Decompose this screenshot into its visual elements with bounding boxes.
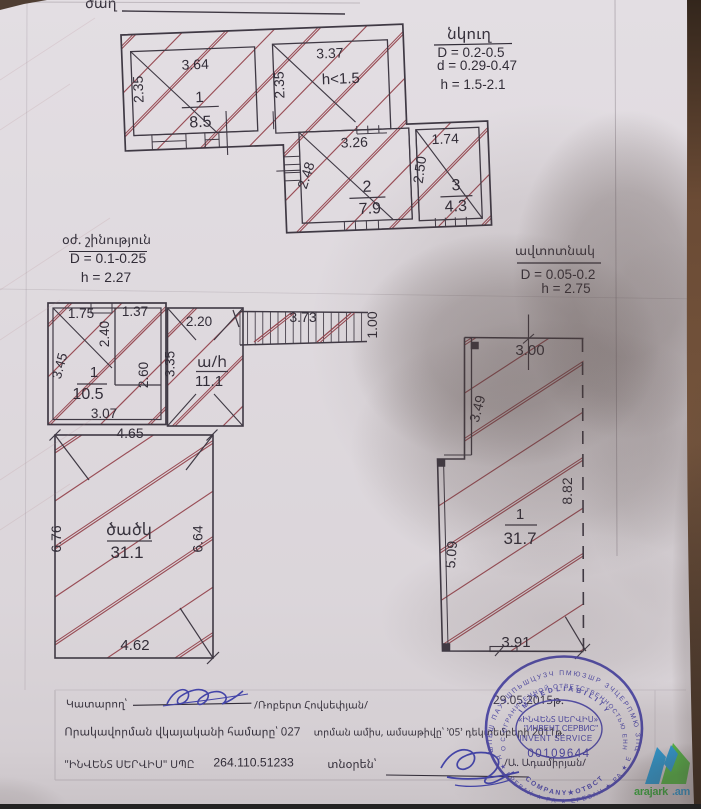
svg-text:1: 1 [195, 89, 204, 106]
svg-text:4.65: 4.65 [116, 425, 143, 441]
svg-text:3.64: 3.64 [181, 56, 209, 73]
svg-text:2.40: 2.40 [97, 321, 112, 347]
svg-text:8.5: 8.5 [189, 114, 212, 132]
svg-text:h = 2.27: h = 2.27 [81, 270, 131, 285]
svg-text:11.1: 11.1 [195, 373, 223, 390]
svg-text:3.35: 3.35 [163, 351, 178, 377]
svg-text:1.75: 1.75 [68, 306, 94, 321]
svg-text:3.26: 3.26 [340, 134, 368, 151]
svg-text:3.37: 3.37 [316, 44, 344, 61]
svg-text:6.76: 6.76 [48, 525, 64, 552]
svg-text:2.35: 2.35 [271, 71, 288, 99]
svg-text:1.37: 1.37 [122, 304, 148, 319]
svg-text:2.20: 2.20 [186, 314, 212, 329]
svg-text:D = 0.1-0.25: D = 0.1-0.25 [70, 251, 147, 266]
svg-text:6.64: 6.64 [190, 525, 206, 552]
svg-text:2.60: 2.60 [136, 362, 151, 388]
svg-text:2.35: 2.35 [130, 75, 147, 103]
svg-text:10.5: 10.5 [72, 386, 103, 403]
svg-text:h = 1.5-2.1: h = 1.5-2.1 [441, 77, 506, 92]
svg-text:3.07: 3.07 [91, 406, 117, 421]
svg-text:264.110.51233: 264.110.51233 [213, 756, 294, 770]
svg-text:31.1: 31.1 [110, 543, 143, 562]
svg-text:1: 1 [90, 364, 98, 381]
svg-text:h<1.5: h<1.5 [322, 70, 361, 88]
svg-text:d = 0.29-0.47: d = 0.29-0.47 [437, 58, 517, 73]
svg-text:4.62: 4.62 [120, 637, 149, 654]
